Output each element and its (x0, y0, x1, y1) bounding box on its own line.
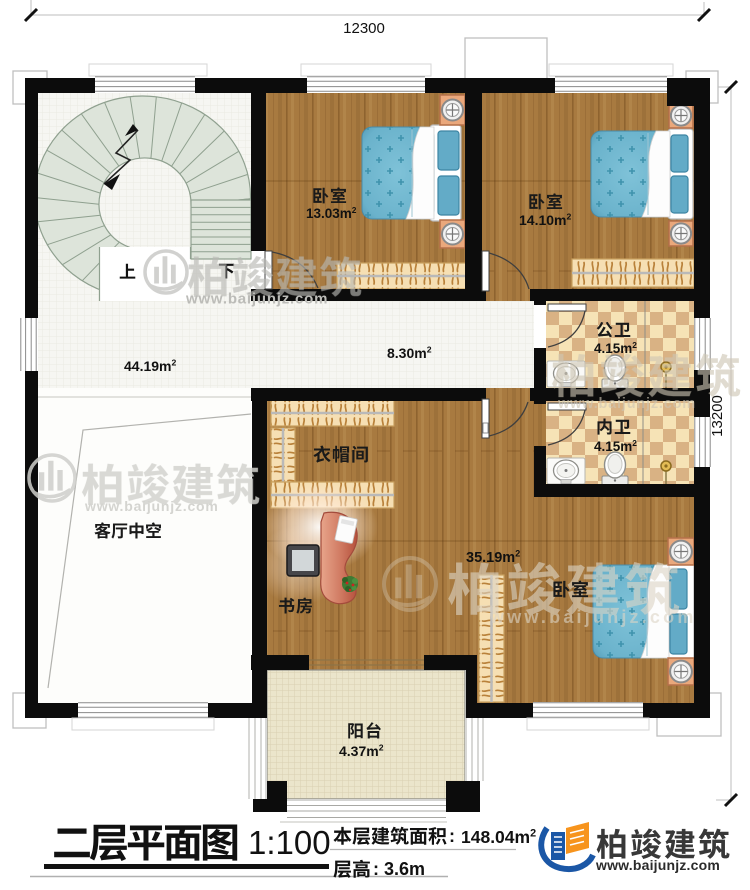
svg-text:1:100: 1:100 (248, 824, 331, 861)
svg-text:www.baijunjz.com: www.baijunjz.com (489, 607, 697, 627)
svg-text:14.10m2: 14.10m2 (519, 212, 571, 228)
svg-text:8.30m2: 8.30m2 (387, 345, 432, 361)
svg-text:35.19m2: 35.19m2 (466, 549, 520, 567)
svg-text:4.15m2: 4.15m2 (594, 340, 637, 356)
svg-text:13.03m2: 13.03m2 (306, 205, 357, 221)
svg-text:4.15m2: 4.15m2 (594, 438, 637, 454)
svg-text:www.baijunjz.com: www.baijunjz.com (185, 291, 328, 308)
svg-text::: : (449, 826, 455, 846)
svg-text:4.37m2: 4.37m2 (339, 743, 384, 759)
svg-text:148.04m2: 148.04m2 (461, 827, 536, 847)
svg-text:: 3.6m: : 3.6m (373, 859, 425, 879)
svg-text:www.baijunjz.com: www.baijunjz.com (84, 498, 219, 514)
svg-text:12300: 12300 (343, 20, 385, 37)
svg-text:13200: 13200 (709, 395, 726, 437)
svg-text:www.baijunjz.com: www.baijunjz.com (595, 857, 720, 873)
svg-text:44.19m2: 44.19m2 (124, 358, 176, 374)
svg-text:www.baijunjz.com: www.baijunjz.com (557, 396, 696, 412)
